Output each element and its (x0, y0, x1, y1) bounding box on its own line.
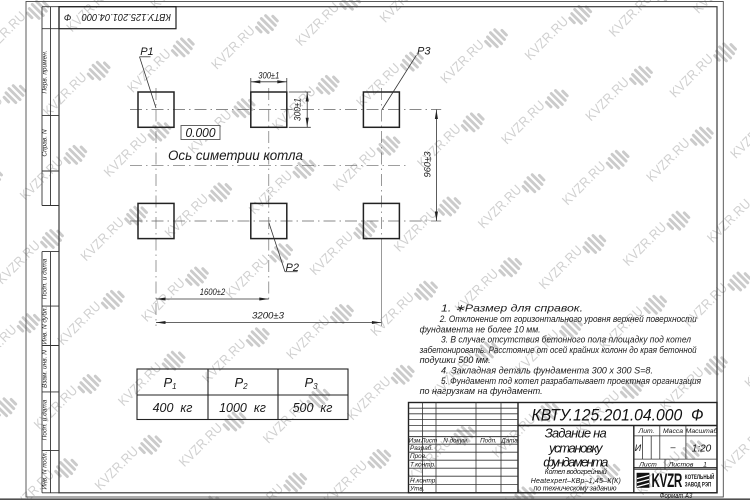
svg-text:960±3: 960±3 (423, 152, 433, 178)
svg-text:500 кг: 500 кг (293, 401, 333, 415)
svg-text:по техническому заданию: по техническому заданию (534, 485, 618, 493)
svg-text:Подп. и дата: Подп. и дата (41, 399, 49, 440)
svg-text:–: – (669, 442, 676, 452)
svg-text:фундамента не более 10 мм.: фундамента не более 10 мм. (420, 324, 541, 334)
svg-text:0.000: 0.000 (186, 125, 217, 140)
svg-text:Разраб.: Разраб. (410, 444, 433, 452)
svg-text:КВТУ.125.201.04.000 Ф: КВТУ.125.201.04.000 Ф (64, 11, 171, 23)
svg-text:Р2: Р2 (286, 262, 299, 274)
svg-text:1600±2: 1600±2 (200, 287, 226, 297)
svg-text:Т.контр.: Т.контр. (410, 461, 436, 468)
svg-text:забетонировать. Расстояние от: забетонировать. Расстояние от осей крайн… (419, 345, 697, 355)
svg-text:ЗАВОД РЭП: ЗАВОД РЭП (685, 482, 712, 489)
svg-text:фундамента: фундамента (543, 455, 608, 470)
svg-text:КВТУ.125.201.04.000 Ф: КВТУ.125.201.04.000 Ф (532, 407, 704, 425)
svg-text:Пров.: Пров. (410, 453, 427, 460)
svg-text:Инв. N подл.: Инв. N подл. (41, 451, 49, 489)
svg-text:И: И (635, 443, 642, 453)
svg-text:Р1: Р1 (140, 46, 153, 58)
svg-text:установку: установку (548, 440, 604, 455)
svg-text:Инв. N дубл.: Инв. N дубл. (41, 306, 49, 344)
svg-text:Формат А3: Формат А3 (660, 493, 693, 500)
svg-text:3. В случае отсутствия бетонн: 3. В случае отсутствия бетонного пола пл… (441, 335, 691, 345)
svg-text:Утв.: Утв. (409, 486, 425, 493)
svg-text:400 кг: 400 кг (153, 401, 193, 415)
svg-text:3200±3: 3200±3 (252, 311, 284, 321)
svg-text:Котел водогрейный: Котел водогрейный (545, 468, 607, 476)
svg-text:300±1: 300±1 (258, 70, 279, 80)
svg-text:1:20: 1:20 (692, 444, 712, 455)
svg-text:Подп.: Подп. (480, 436, 497, 444)
svg-text:2. Отклонение от горизонтальн: 2. Отклонение от горизонтального уровня … (439, 314, 697, 324)
svg-text:подушки 500 мм.: подушки 500 мм. (420, 355, 491, 365)
svg-text:Лит.: Лит. (638, 428, 655, 435)
svg-text:Heatexpert–КВр–1,45–К(К): Heatexpert–КВр–1,45–К(К) (531, 478, 621, 485)
svg-text:5. Фундамент под котел разраб: 5. Фундамент под котел разрабатывает про… (441, 376, 701, 386)
svg-text:Масса: Масса (663, 428, 683, 435)
svg-text:Перв. примен.: Перв. примен. (42, 50, 49, 93)
svg-text:KVZR: KVZR (652, 470, 683, 492)
svg-text:1000 кг: 1000 кг (219, 401, 266, 415)
svg-text:300±1: 300±1 (292, 98, 302, 121)
svg-text:4. Закладная деталь фундамент: 4. Закладная деталь фундамента 300 x 300… (441, 366, 653, 376)
svg-text:Лист: Лист (420, 437, 437, 444)
svg-text:Н.контр.: Н.контр. (410, 478, 437, 485)
svg-text:по нагрузкам на фундамент.: по нагрузкам на фундамент. (420, 386, 543, 396)
svg-text:Лист: Лист (638, 462, 657, 469)
svg-text:Задание на: Задание на (545, 425, 607, 440)
svg-text:N докум.: N докум. (443, 436, 468, 444)
svg-text:Листов: Листов (668, 462, 694, 469)
svg-text:Справ. N: Справ. N (42, 129, 49, 157)
svg-text:КОТЕЛЬНЫЙ: КОТЕЛЬНЫЙ (685, 472, 715, 481)
svg-text:1: 1 (703, 462, 707, 469)
svg-text:Масштаб: Масштаб (686, 427, 719, 435)
svg-text:Взам. инв. N: Взам. инв. N (42, 350, 49, 388)
svg-text:Ось симетрии котла: Ось симетрии котла (168, 147, 303, 163)
svg-text:Дата: Дата (500, 437, 518, 444)
svg-text:Подп. и дата: Подп. и дата (41, 258, 49, 299)
svg-text:Р3: Р3 (417, 45, 431, 57)
